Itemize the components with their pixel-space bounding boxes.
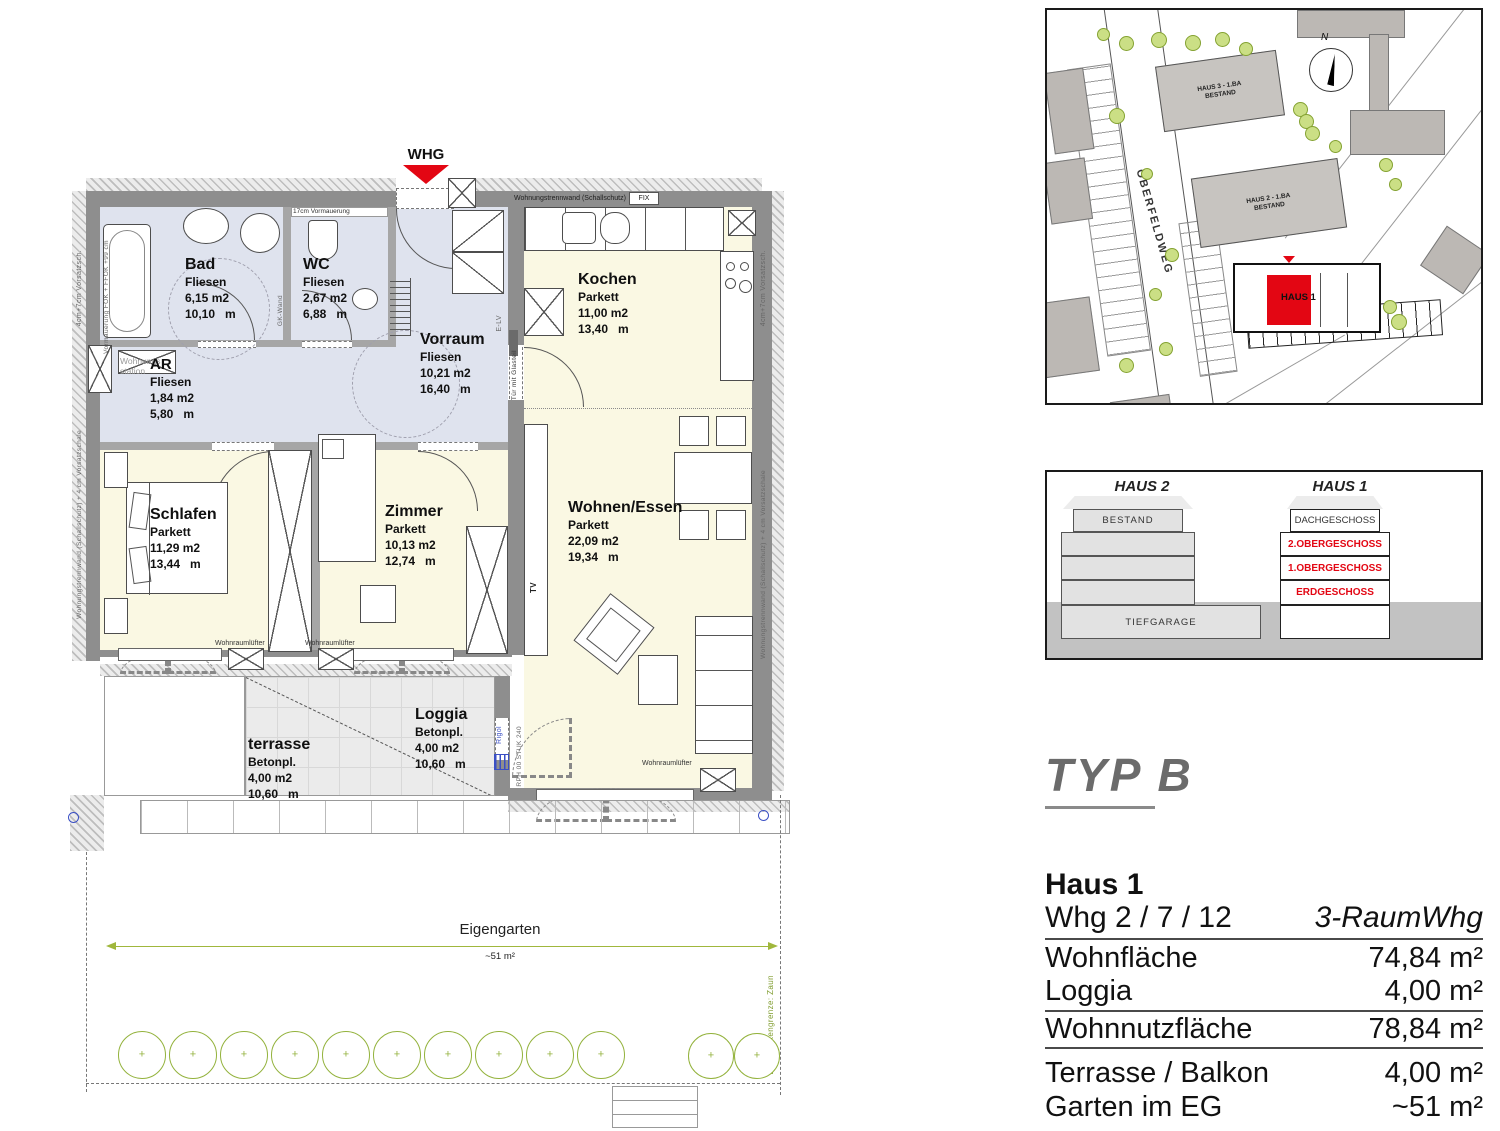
room-length: 10,10 m	[185, 306, 236, 322]
haus2-bestand: BESTAND	[1073, 509, 1183, 532]
og1-label: 1.OBERGESCHOSS	[1288, 563, 1382, 574]
whg-numbers: Whg 2 / 7 / 12	[1045, 901, 1232, 934]
row-label: Loggia	[1045, 975, 1132, 1008]
boundary-left	[86, 852, 87, 1092]
table-row: Garten im EG ~51 m²	[1045, 1091, 1483, 1124]
tiefgarage: TIEFGARAGE	[1061, 605, 1261, 639]
pavement-strip	[140, 800, 790, 834]
room-floor: Fliesen	[303, 274, 347, 290]
room-name: WC	[303, 255, 347, 274]
vorraum-wardrobe-2	[452, 252, 504, 294]
rigol-label: Rigol	[496, 726, 503, 744]
label-bad: Bad Fliesen 6,15 m2 10,10 m	[185, 255, 236, 322]
e-lv-label: E-LV	[496, 315, 503, 332]
pillow	[322, 439, 344, 459]
tree	[1389, 178, 1402, 191]
bush	[475, 1031, 523, 1079]
boundary-bottom	[86, 1083, 780, 1084]
room-name: Loggia	[415, 705, 467, 724]
kitchen-sink-2	[600, 212, 630, 244]
row-value: 4,00 m²	[1385, 975, 1483, 1008]
kitchen-corner-unit	[728, 210, 756, 236]
vormauerung17-label: 17cm Vormauerung	[293, 208, 350, 215]
wall-vorraum-kochen	[508, 191, 524, 345]
kochen-wohnen-divider	[524, 408, 754, 409]
room-floor: Betonpl.	[248, 754, 310, 770]
dining-chair	[679, 416, 709, 446]
neighbour-building	[1045, 296, 1100, 378]
neighbour-building	[1420, 226, 1483, 295]
bush	[373, 1031, 421, 1079]
haus1-label: HAUS 1	[1281, 292, 1316, 303]
room-floor: Parkett	[150, 524, 217, 540]
haus1-basement	[1280, 605, 1390, 639]
room-length: 5,80 m	[150, 406, 194, 422]
cooktop-burner-4	[739, 280, 752, 293]
room-name: terrasse	[248, 735, 310, 754]
room-floor: Betonpl.	[415, 724, 467, 740]
room-area: 22,09 m2	[568, 533, 682, 549]
dining-chair	[716, 416, 746, 446]
bush	[424, 1031, 472, 1079]
haus2-roof	[1063, 496, 1193, 509]
tree	[1119, 358, 1134, 373]
room-length: 10,60 m	[415, 756, 467, 772]
tree	[1185, 35, 1201, 51]
building-haus3: HAUS 3 - 1.BA BESTAND	[1155, 50, 1285, 132]
bush	[271, 1031, 319, 1079]
radiator	[390, 278, 411, 336]
haus2-floor	[1061, 532, 1195, 556]
bush	[220, 1031, 268, 1079]
bush	[169, 1031, 217, 1079]
building-section: HAUS 2 BESTAND TIEFGARAGE HAUS 1 DACHGES…	[1045, 470, 1483, 660]
room-name: Schlafen	[150, 505, 217, 524]
desk	[360, 585, 396, 623]
bush	[526, 1031, 574, 1079]
label-wc: WC Fliesen 2,67 m2 6,88 m	[303, 255, 347, 322]
window-zimmer	[350, 648, 454, 661]
plan-sheet: WHG	[0, 0, 1500, 1131]
row-label: Wohnnutzfläche	[1045, 1013, 1252, 1046]
label-zimmer: Zimmer Parkett 10,13 m2 12,74 m	[385, 502, 443, 569]
eg-label: ERDGESCHOSS	[1296, 587, 1374, 598]
coffee-table	[638, 655, 678, 705]
tree	[1329, 140, 1342, 153]
room-area: 10,21 m2	[420, 365, 485, 381]
room-length: 19,34 m	[568, 549, 682, 565]
room-area: 4,00 m2	[248, 770, 310, 786]
typ-underline	[1045, 806, 1155, 809]
bathtub-inner	[109, 230, 145, 332]
room-area: 2,67 m2	[303, 290, 347, 306]
haus1-eg: ERDGESCHOSS	[1280, 580, 1390, 605]
trennwand-top-label: Wohnungstrennwand (Schallschutz)	[514, 195, 626, 202]
neighbour-building	[1045, 157, 1093, 224]
insulation-hatch-right	[772, 191, 784, 791]
cooktop-burner-1	[726, 262, 735, 271]
entry-label: WHG	[398, 146, 454, 163]
boundary-right	[780, 795, 781, 1095]
vorraum-wardrobe-1	[452, 210, 504, 252]
label-loggia: Loggia Betonpl. 4,00 m2 10,60 m	[415, 705, 467, 772]
haus2-floor	[1061, 556, 1195, 580]
typ-title: TYP B	[1045, 748, 1194, 802]
room-floor: Parkett	[578, 289, 637, 305]
apartment-type: 3-RaumWhg	[1315, 901, 1483, 934]
room-floor: Fliesen	[150, 374, 194, 390]
vorsatz-left-label: 4cm+7cm Vorsatzsch.	[76, 250, 83, 326]
room-name: Bad	[185, 255, 236, 274]
divider	[1045, 1047, 1483, 1049]
haus-title: Haus 1	[1045, 868, 1143, 902]
survey-point	[758, 810, 769, 821]
shaft-entry	[448, 178, 476, 208]
label-kochen: Kochen Parkett 11,00 m2 13,40 m	[578, 270, 637, 337]
bathtub	[103, 224, 151, 338]
label-terrasse: terrasse Betonpl. 4,00 m2 10,60 m	[248, 735, 310, 802]
unit-marker-icon	[1283, 256, 1295, 263]
bush	[688, 1033, 734, 1079]
room-name: Wohnen/Essen	[568, 498, 682, 517]
kitchen-cabinet-left	[524, 288, 564, 336]
tree	[1379, 158, 1393, 172]
label-vorraum: Vorraum Fliesen 10,21 m2 16,40 m	[420, 330, 485, 397]
neighbour-building	[1350, 110, 1445, 155]
hatch-bottom-left	[70, 795, 104, 851]
tree	[1391, 314, 1407, 330]
table-row: Loggia 4,00 m²	[1045, 975, 1483, 1008]
washbasin	[183, 208, 229, 244]
row-label: Wohnfläche	[1045, 942, 1198, 975]
row-label: Terrasse / Balkon	[1045, 1057, 1269, 1090]
label-ar: AR Fliesen 1,84 m2 5,80 m	[150, 355, 194, 422]
section-haus1-title: HAUS 1	[1265, 478, 1415, 495]
tree	[1165, 248, 1179, 262]
door-gap-schlafen	[212, 442, 274, 451]
tree	[1141, 168, 1153, 180]
site-plan: OBERFELDWEG HAUS 3 - 1.BA BESTAND HAUS 2…	[1045, 8, 1483, 405]
dining-table	[674, 452, 752, 504]
room-name: Zimmer	[385, 502, 443, 521]
room-area: 4,00 m2	[415, 740, 467, 756]
pillow	[129, 492, 152, 530]
room-area: 10,13 m2	[385, 537, 443, 553]
armchair-seat	[586, 607, 641, 662]
whg-arrow-icon	[403, 165, 449, 184]
north-label: N	[1321, 32, 1328, 43]
tree	[1109, 108, 1125, 124]
arrowhead-left-icon	[106, 942, 116, 950]
og2-label: 2.OBERGESCHOSS	[1288, 539, 1382, 550]
wall-zimmer-wohnen	[508, 400, 524, 655]
terrace-area	[104, 676, 245, 796]
wardrobe-schlafen	[268, 450, 312, 652]
wohnraumluefter-label: Wohnraumlüfter	[305, 640, 355, 647]
door-gap-wc	[302, 341, 352, 348]
compass-icon	[1309, 48, 1353, 92]
tree	[1383, 300, 1397, 314]
gk-wand-label: GK-Wand	[277, 295, 284, 326]
haus2-floor	[1061, 580, 1195, 605]
row-value: 4,00 m²	[1385, 1057, 1483, 1090]
wardrobe-zimmer	[466, 526, 508, 654]
room-area: 11,29 m2	[150, 540, 217, 556]
insulation-hatch-top-right	[452, 178, 762, 191]
washing-machine	[240, 213, 280, 253]
kitchen-sink-1	[562, 212, 596, 244]
room-length: 16,40 m	[420, 381, 485, 397]
unit-divider	[1320, 273, 1321, 327]
vorsatz-right-label: 4cm+7cm Vorsatzsch.	[760, 250, 767, 326]
vormauerung-bad-label: Vormauerung FOK + FFOK +99 cm	[103, 240, 110, 354]
wall-left	[86, 191, 100, 661]
cooktop-burner-3	[725, 278, 736, 289]
bush	[118, 1031, 166, 1079]
row-value: 74,84 m²	[1369, 942, 1483, 975]
room-length: 13,44 m	[150, 556, 217, 572]
haus1-og2: 2.OBERGESCHOSS	[1280, 532, 1390, 556]
bush	[322, 1031, 370, 1079]
fix-window-label: FIX	[629, 192, 659, 205]
room-area: 6,15 m2	[185, 290, 236, 306]
section-haus2-title: HAUS 2	[1067, 478, 1217, 495]
door-gap-zimmer	[418, 442, 478, 451]
tree	[1305, 126, 1320, 141]
survey-point	[68, 812, 79, 823]
entry-opening	[396, 188, 454, 209]
window-schlafen	[118, 648, 222, 661]
neighbour-building	[1110, 394, 1172, 405]
tree	[1119, 36, 1134, 51]
tree	[1149, 288, 1162, 301]
unit-divider	[1347, 273, 1348, 327]
room-length: 6,88 m	[303, 306, 347, 322]
trennwand-left-label: Wohnungstrennwand (Schallschutz) + 4 cm …	[76, 430, 83, 619]
label-schlafen: Schlafen Parkett 11,29 m2 13,44 m	[150, 505, 217, 572]
sofa	[695, 616, 753, 754]
room-name: Vorraum	[420, 330, 485, 349]
label-wohnen-essen: Wohnen/Essen Parkett 22,09 m2 19,34 m	[568, 498, 682, 565]
building-haus1: HAUS 1	[1233, 263, 1381, 333]
wohnraumluefter-label: Wohnraumlüfter	[215, 640, 265, 647]
haus1-dachgeschoss: DACHGESCHOSS	[1290, 509, 1380, 532]
haus2-label: HAUS 2 - 1.BA BESTAND	[1246, 192, 1292, 214]
nightstand	[104, 452, 128, 488]
room-length: 10,60 m	[248, 786, 310, 802]
row-label: Garten im EG	[1045, 1091, 1222, 1124]
table-row: Wohnnutzfläche 78,84 m²	[1045, 1013, 1483, 1046]
rigol-hatch	[494, 754, 509, 770]
tv-sideboard	[524, 424, 548, 656]
row-value: ~51 m²	[1392, 1091, 1483, 1124]
insulation-hatch-top-left	[86, 178, 396, 191]
building-haus2: HAUS 2 - 1.BA BESTAND	[1191, 158, 1347, 248]
kitchen-counter-right	[720, 251, 754, 381]
wc-handbasin	[352, 288, 378, 310]
haus3-label: HAUS 3 - 1.BA BESTAND	[1197, 80, 1243, 102]
tuer-glas-label: Tür mit Glasteil	[511, 350, 518, 400]
divider	[1045, 1010, 1483, 1012]
room-floor: Parkett	[385, 521, 443, 537]
needle-outline	[1325, 51, 1339, 83]
garden-dimension-line	[112, 946, 774, 947]
room-length: 12,74 m	[385, 553, 443, 569]
wohnraumluefter-box	[700, 768, 736, 792]
pillow	[129, 546, 152, 584]
dining-chair	[679, 510, 709, 540]
wohnraumluefter-box	[228, 648, 264, 670]
tv-label: TV	[529, 582, 538, 593]
wohnraumluefter-label: Wohnraumlüfter	[642, 760, 692, 767]
garden-stairs	[612, 1086, 698, 1128]
room-floor: Fliesen	[185, 274, 236, 290]
haus1-roof	[1287, 496, 1383, 509]
garden-size: ~51 m²	[455, 951, 545, 962]
bush	[734, 1033, 780, 1079]
tree	[1151, 32, 1167, 48]
room-area: 11,00 m2	[578, 305, 637, 321]
dining-chair	[716, 510, 746, 540]
table-row: Wohnfläche 74,84 m²	[1045, 942, 1483, 975]
wall-bad-wc	[283, 207, 291, 347]
tree	[1159, 342, 1173, 356]
rph-label: RPH 00 STUK 240	[516, 726, 523, 787]
room-floor: Fliesen	[420, 349, 485, 365]
toilet	[308, 220, 338, 260]
garden-title: Eigengarten	[395, 921, 605, 938]
room-name: AR	[150, 355, 194, 374]
tree	[1097, 28, 1110, 41]
single-bed	[318, 434, 376, 562]
tree	[1239, 42, 1253, 56]
nightstand	[104, 598, 128, 634]
haus1-og1: 1.OBERGESCHOSS	[1280, 556, 1390, 580]
trennwand-right-label: Wohnungstrennwand (Schallschutz) + 4 cm …	[760, 470, 767, 659]
table-row: Terrasse / Balkon 4,00 m²	[1045, 1057, 1483, 1090]
cooktop-burner-2	[740, 262, 749, 271]
room-area: 1,84 m2	[150, 390, 194, 406]
divider	[1045, 938, 1483, 940]
arrowhead-right-icon	[768, 942, 778, 950]
room-floor: Parkett	[568, 517, 682, 533]
tree	[1215, 32, 1230, 47]
row-value: 78,84 m²	[1369, 1013, 1483, 1046]
wohnraumluefter-box	[318, 648, 354, 670]
room-length: 13,40 m	[578, 321, 637, 337]
room-name: Kochen	[578, 270, 637, 289]
bush	[577, 1031, 625, 1079]
